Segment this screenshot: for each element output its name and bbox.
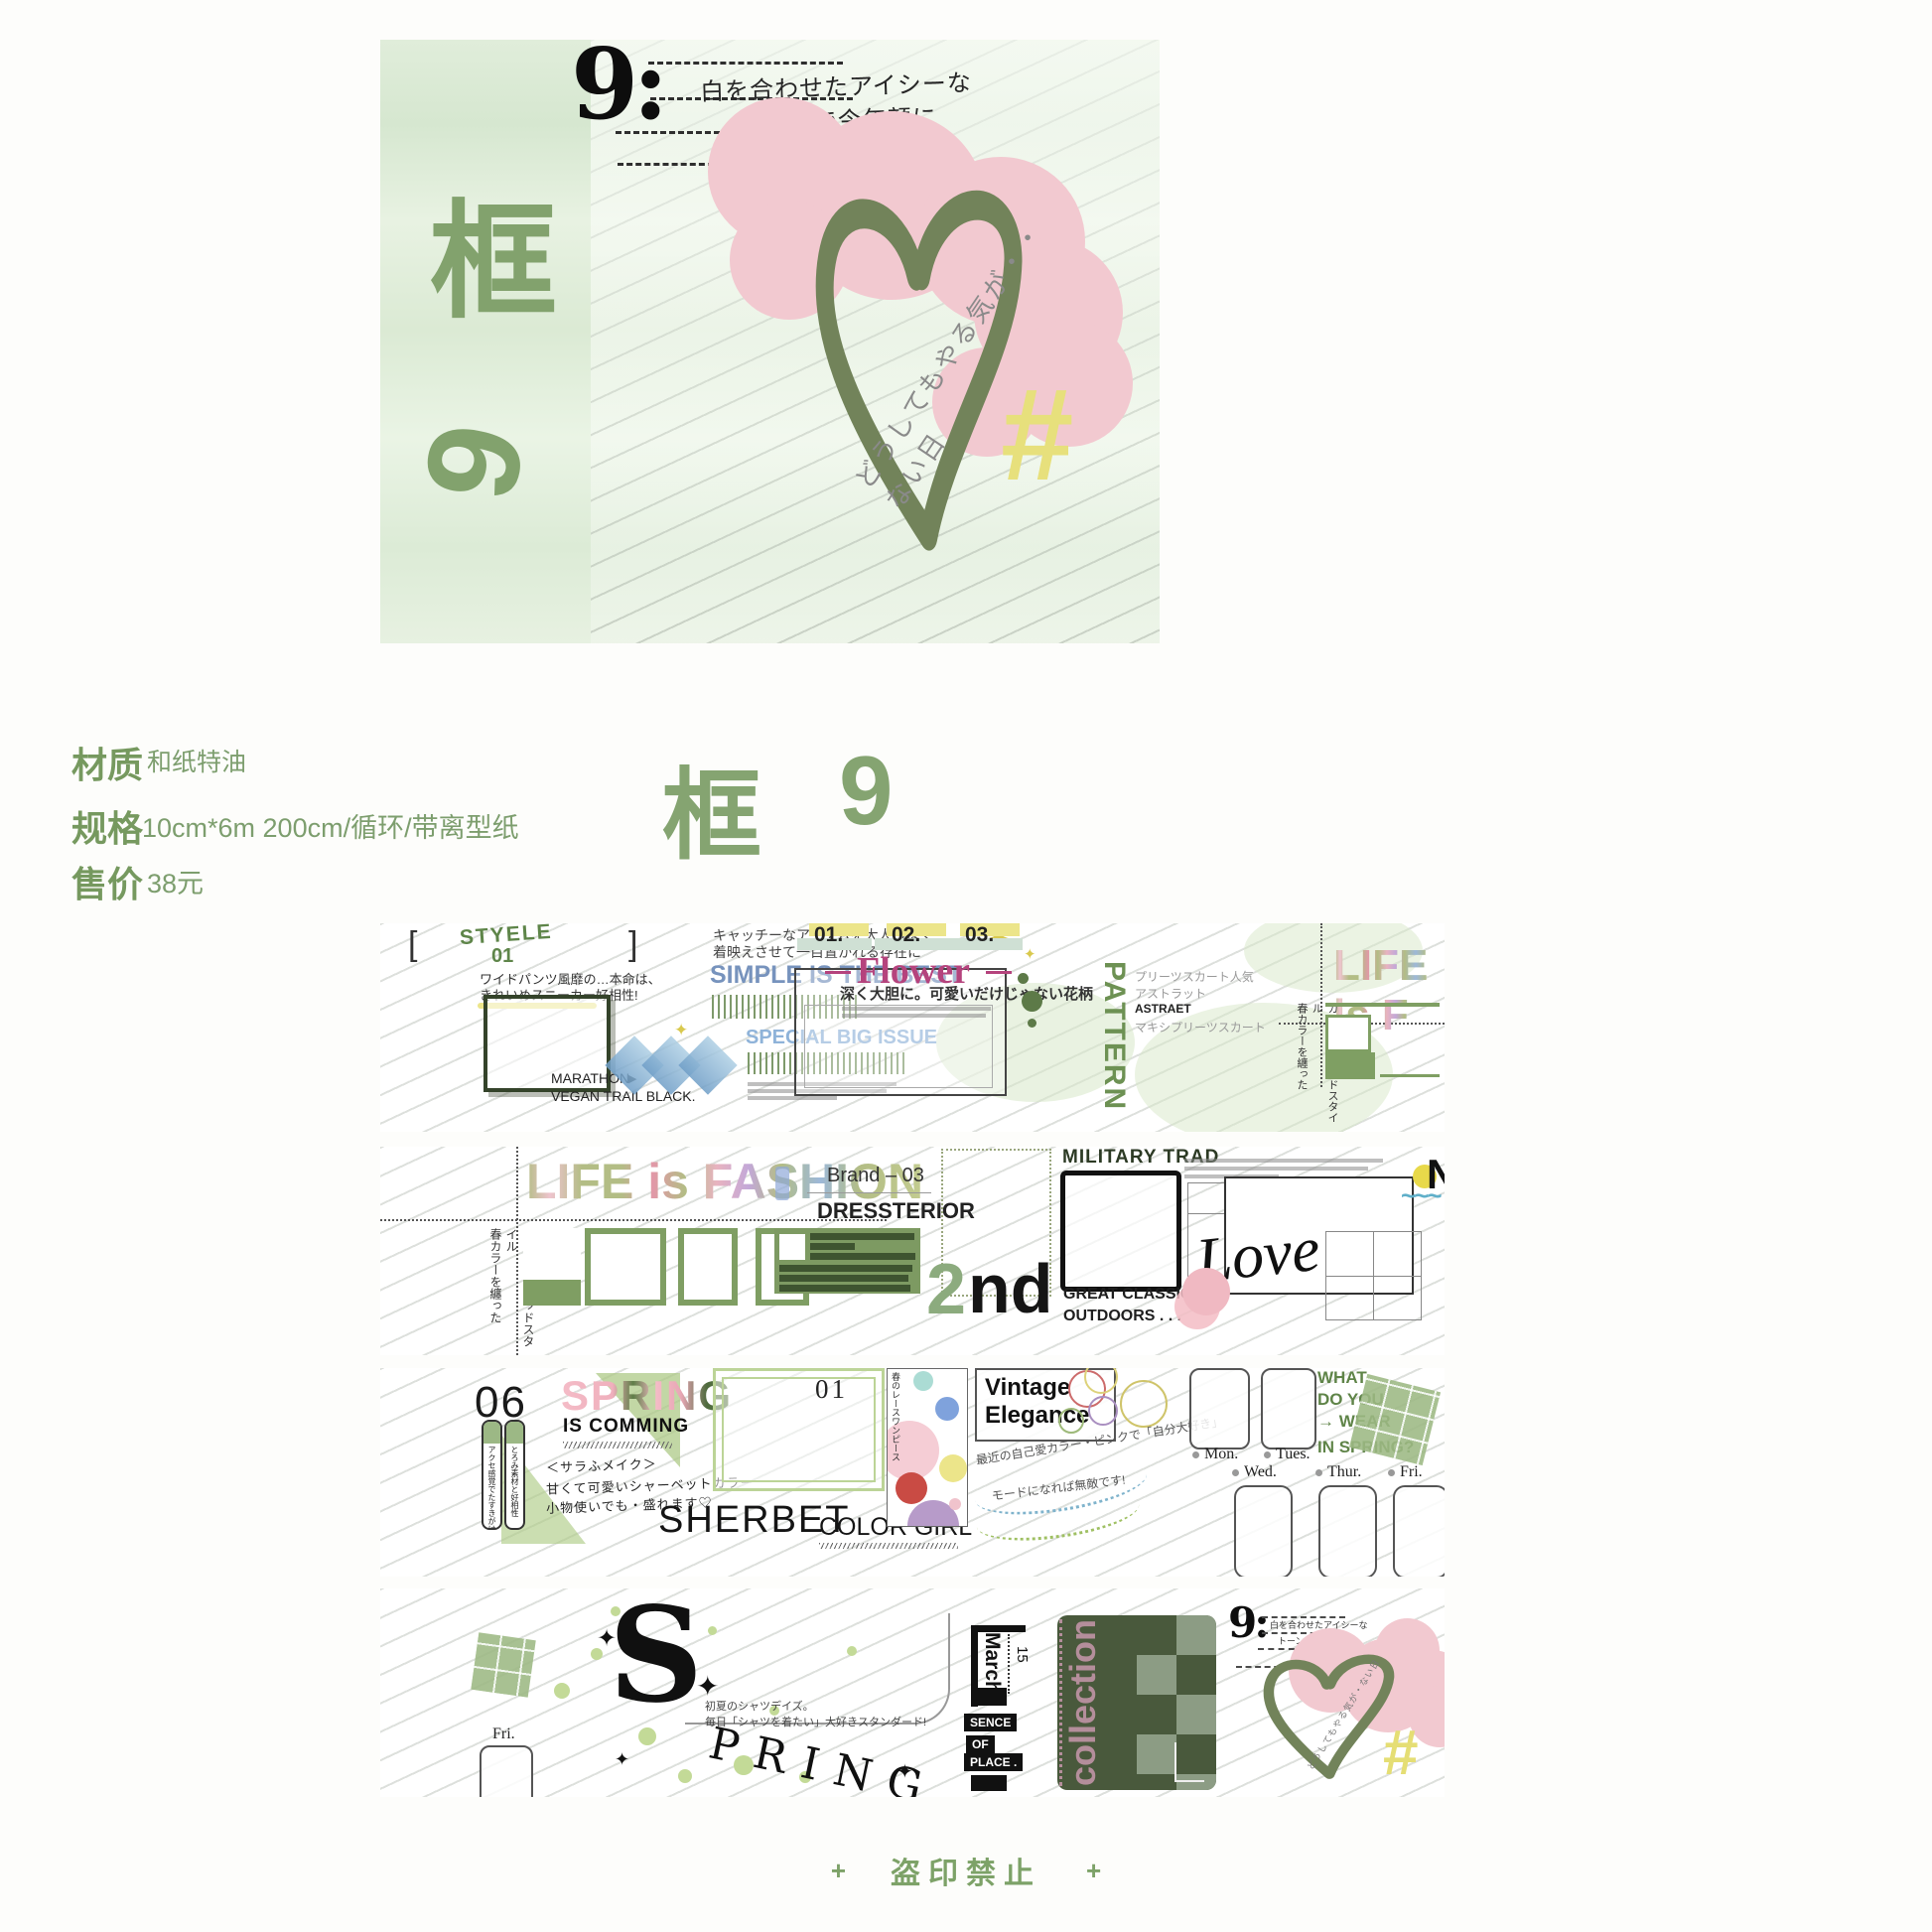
fine-print-line (842, 1007, 991, 1011)
pin-dot (1388, 1469, 1395, 1476)
hashtag-icon: # (1383, 1716, 1419, 1789)
brand-underline (807, 1192, 931, 1193)
bass-clef-icon: 9: (571, 42, 662, 129)
tag-capsule: とろみ素材と好相性 (504, 1420, 525, 1530)
plus-icon: + (1086, 1856, 1101, 1886)
index-number-3: 03. (965, 923, 994, 947)
green-double-frame-inner (722, 1377, 876, 1482)
footer: + 盗印禁止 + (0, 1849, 1932, 1892)
series-title-number: 9 (839, 735, 894, 847)
stamp-frame (1060, 1171, 1181, 1292)
vintage-card: Vintage Elegance (975, 1368, 1116, 1442)
tape-row-4: Fri. S ✦ ✦ ✦ PRING ✦ 初夏のシャツデイズ。 毎日「シャツを着… (380, 1588, 1445, 1797)
grid-frame (1325, 1231, 1422, 1320)
pleats-line3: ASTRAET (1135, 1002, 1191, 1016)
frame-number: 01 (815, 1374, 848, 1405)
hatch-bar (563, 1442, 672, 1449)
pin-dot (1264, 1451, 1271, 1458)
flower-dash (986, 971, 1012, 974)
spec-label: 规格 (71, 800, 143, 852)
dotted-guide-horizontal (380, 1219, 887, 1221)
pin-dot (1192, 1451, 1199, 1458)
product-info: 材质 和纸特油 规格 10cm*6m 200cm/循环/带离型纸 售价 38元 … (0, 643, 1932, 923)
collection-card: collection (1057, 1615, 1216, 1790)
polka-dot (939, 1454, 967, 1482)
hero-numeral: 6 (394, 413, 554, 511)
pleats-line4: マキシプリーツスカート (1135, 1019, 1266, 1035)
calendar-slot-thur (1318, 1485, 1377, 1577)
tag-label-2: とろみ素材と好相性 (509, 1446, 520, 1517)
tag-capsule-top (483, 1422, 500, 1444)
shirt-note-line1: 初夏のシャツデイズ。 (705, 1698, 814, 1714)
black-block (971, 1775, 1007, 1791)
calendar-slot-tues (1261, 1368, 1316, 1449)
pin-dot (1315, 1469, 1322, 1476)
second-suffix: nd (968, 1254, 1053, 1323)
sparkle-icon: ✦ (1024, 945, 1036, 963)
layout-frame (1325, 1003, 1440, 1079)
place-bar: PLACE . (964, 1753, 1023, 1771)
dashed-line (648, 62, 843, 65)
bracket-close: ] (628, 925, 637, 964)
star-icon: ✦ (615, 1749, 629, 1770)
flower-dash (825, 971, 851, 974)
collection-vertical-title: collection (1059, 1619, 1104, 1786)
flower-subtitle: 深く大胆に。可愛いだけじゃない花柄 (840, 983, 1093, 1004)
confetti (554, 1683, 570, 1699)
star-icon: ✦ (597, 1624, 617, 1653)
what-line1: WHAT (1317, 1368, 1367, 1388)
letter-n: N (1427, 1151, 1445, 1198)
layout-line (1380, 1074, 1440, 1077)
vintage-word: Vintage (985, 1374, 1070, 1402)
style-number: 01 (491, 945, 513, 968)
green-double-frame (713, 1368, 885, 1491)
text-highlight-bar (779, 1275, 908, 1282)
great-classic-line: GREAT CLASSIC (1063, 1286, 1191, 1304)
outline-circle (1058, 1408, 1084, 1434)
pring-letters: PRING (705, 1719, 942, 1797)
green-dot (1022, 991, 1042, 1012)
text-highlight-bar (810, 1233, 914, 1240)
outdoors-line: OUTDOORS . . . (1063, 1308, 1181, 1325)
polka-dot (913, 1371, 933, 1391)
polka-dot (935, 1397, 959, 1421)
fine-print-line (748, 1096, 837, 1100)
hero-frame-character: 框 (430, 159, 557, 343)
pleats-line1: プリーツスカート人気 (1135, 968, 1254, 985)
checker-square (1176, 1615, 1216, 1655)
brand-number: Brand – 03 (827, 1165, 924, 1187)
white-bracket (1174, 1742, 1204, 1782)
anti-piracy-notice: 盗印禁止 (891, 1849, 1041, 1892)
monday-label: Mon. (1204, 1446, 1238, 1463)
hatch-bar (819, 1543, 958, 1549)
confetti (678, 1769, 692, 1783)
calendar-slot-fri (1393, 1485, 1445, 1577)
checker-square (1137, 1734, 1176, 1774)
pin-dot (1232, 1469, 1239, 1476)
index-number-1: 01. (814, 923, 843, 947)
pattern-headline: PATTERN (1097, 961, 1131, 1085)
layout-cell (1325, 1015, 1371, 1052)
is-comming-subhead: IS COMMING (563, 1416, 689, 1438)
thursday-label: Thur. (1327, 1463, 1361, 1481)
photo-frame (585, 1228, 666, 1306)
index-number-2: 02. (892, 923, 920, 947)
military-trad-headline: MILITARY TRAD (1062, 1147, 1219, 1169)
diamond-decoration (678, 1035, 737, 1094)
checker-square (1137, 1655, 1176, 1695)
photo-frame (678, 1228, 738, 1306)
shirt-note-line2: 毎日「シャツを着たい」大好きスタンダード! (705, 1714, 926, 1729)
price-value: 38元 (147, 862, 204, 900)
tag-capsule: アクセ感覚でたすきがけ (482, 1420, 502, 1530)
green-dot (1028, 1019, 1036, 1028)
friday-label: Fri. (1400, 1463, 1423, 1481)
lace-dress-vertical: 春のレースワンピース (890, 1372, 902, 1481)
spring-color-vertical1: 春カラーを纏った (1294, 1003, 1310, 1132)
dotted-divider (1008, 1634, 1010, 1694)
hashtag-icon: # (1001, 359, 1073, 509)
green-text-panel (774, 1228, 920, 1294)
spec-value: 10cm*6m 200cm/循环/带离型纸 (142, 806, 519, 845)
date-label: 15 (1014, 1646, 1031, 1686)
tuesday-label: Tues. (1276, 1446, 1311, 1463)
makeup-note-line1: ＜サラふメイク＞ (546, 1453, 657, 1476)
tape-row-2: 春カラーを纏った ガールズトラッドスタイル LIFE is FASHION Br… (380, 1147, 1445, 1355)
calendar-slot-mon (1189, 1368, 1250, 1449)
product-poster: 框 6 9: 白を合わせたアイシーな トーンで今年顔に どうしてもやる気が・・な… (0, 0, 1932, 1932)
second-number: 2 (926, 1254, 966, 1325)
fine-print-line (842, 1014, 986, 1018)
text-highlight-bar (810, 1253, 915, 1260)
panel-photo (779, 1234, 805, 1260)
wednesday-label: Wed. (1244, 1463, 1277, 1481)
checker-square (1176, 1695, 1216, 1734)
of-bar: OF (966, 1735, 995, 1753)
polka-dot-card: 春のレースワンピース (887, 1368, 968, 1527)
photo-frame-cell (523, 1228, 581, 1306)
material-label: 材质 (71, 737, 143, 788)
text-highlight-bar (779, 1265, 912, 1272)
layout-cell-filled (1325, 1052, 1375, 1079)
outline-circle (1088, 1396, 1118, 1426)
spring-headline: SPRING (561, 1372, 733, 1420)
plus-icon: + (831, 1856, 846, 1886)
calendar-slot-wed (1234, 1485, 1293, 1577)
friday-label: Fri. (492, 1725, 515, 1743)
tape-row-1: [ STYELE 01 ] キャッチーなアイテムを大人っぽく 着映えさせて一目置… (380, 923, 1445, 1132)
tag-label-1: アクセ感覚でたすきがけ (486, 1446, 497, 1530)
price-label: 售价 (71, 856, 143, 907)
plaid-patch (471, 1632, 536, 1698)
text-highlight-bar (810, 1243, 855, 1250)
tape-row-3: 06 SPRING IS COMMING ＜サラふメイク＞ 甘くて可愛いシャーベ… (380, 1368, 1445, 1577)
material-value: 和纸特油 (147, 743, 246, 778)
text-highlight-bar (779, 1285, 910, 1292)
pleats-line2: アストラット (1135, 985, 1206, 1002)
pink-circle (1182, 1268, 1230, 1315)
black-block (971, 1688, 1007, 1706)
sparkle-icon: ✦ (674, 1021, 688, 1040)
polka-dot (949, 1498, 961, 1510)
ornate-s: S (609, 1590, 703, 1722)
grid-line (1326, 1276, 1421, 1277)
green-dot (1018, 973, 1029, 984)
bass-clef-icon: 9: (1228, 1604, 1267, 1642)
fine-print-line (1184, 1167, 1368, 1171)
hero-artwork: 框 6 9: 白を合わせたアイシーな トーンで今年顔に どうしてもやる気が・・な… (380, 40, 1160, 643)
spring-color-vertical1: 春カラーを纏った (487, 1228, 504, 1352)
sence-bar: SENCE (964, 1714, 1017, 1731)
bracket-open: [ (408, 925, 417, 964)
fine-print-line (1184, 1159, 1383, 1163)
series-title-character: 框 (662, 735, 761, 879)
tag-capsule-top (506, 1422, 523, 1444)
outline-circle (1120, 1380, 1168, 1428)
blue-accent (775, 1167, 789, 1200)
star-icon: ✦ (897, 1759, 913, 1784)
calendar-slot (480, 1745, 533, 1797)
